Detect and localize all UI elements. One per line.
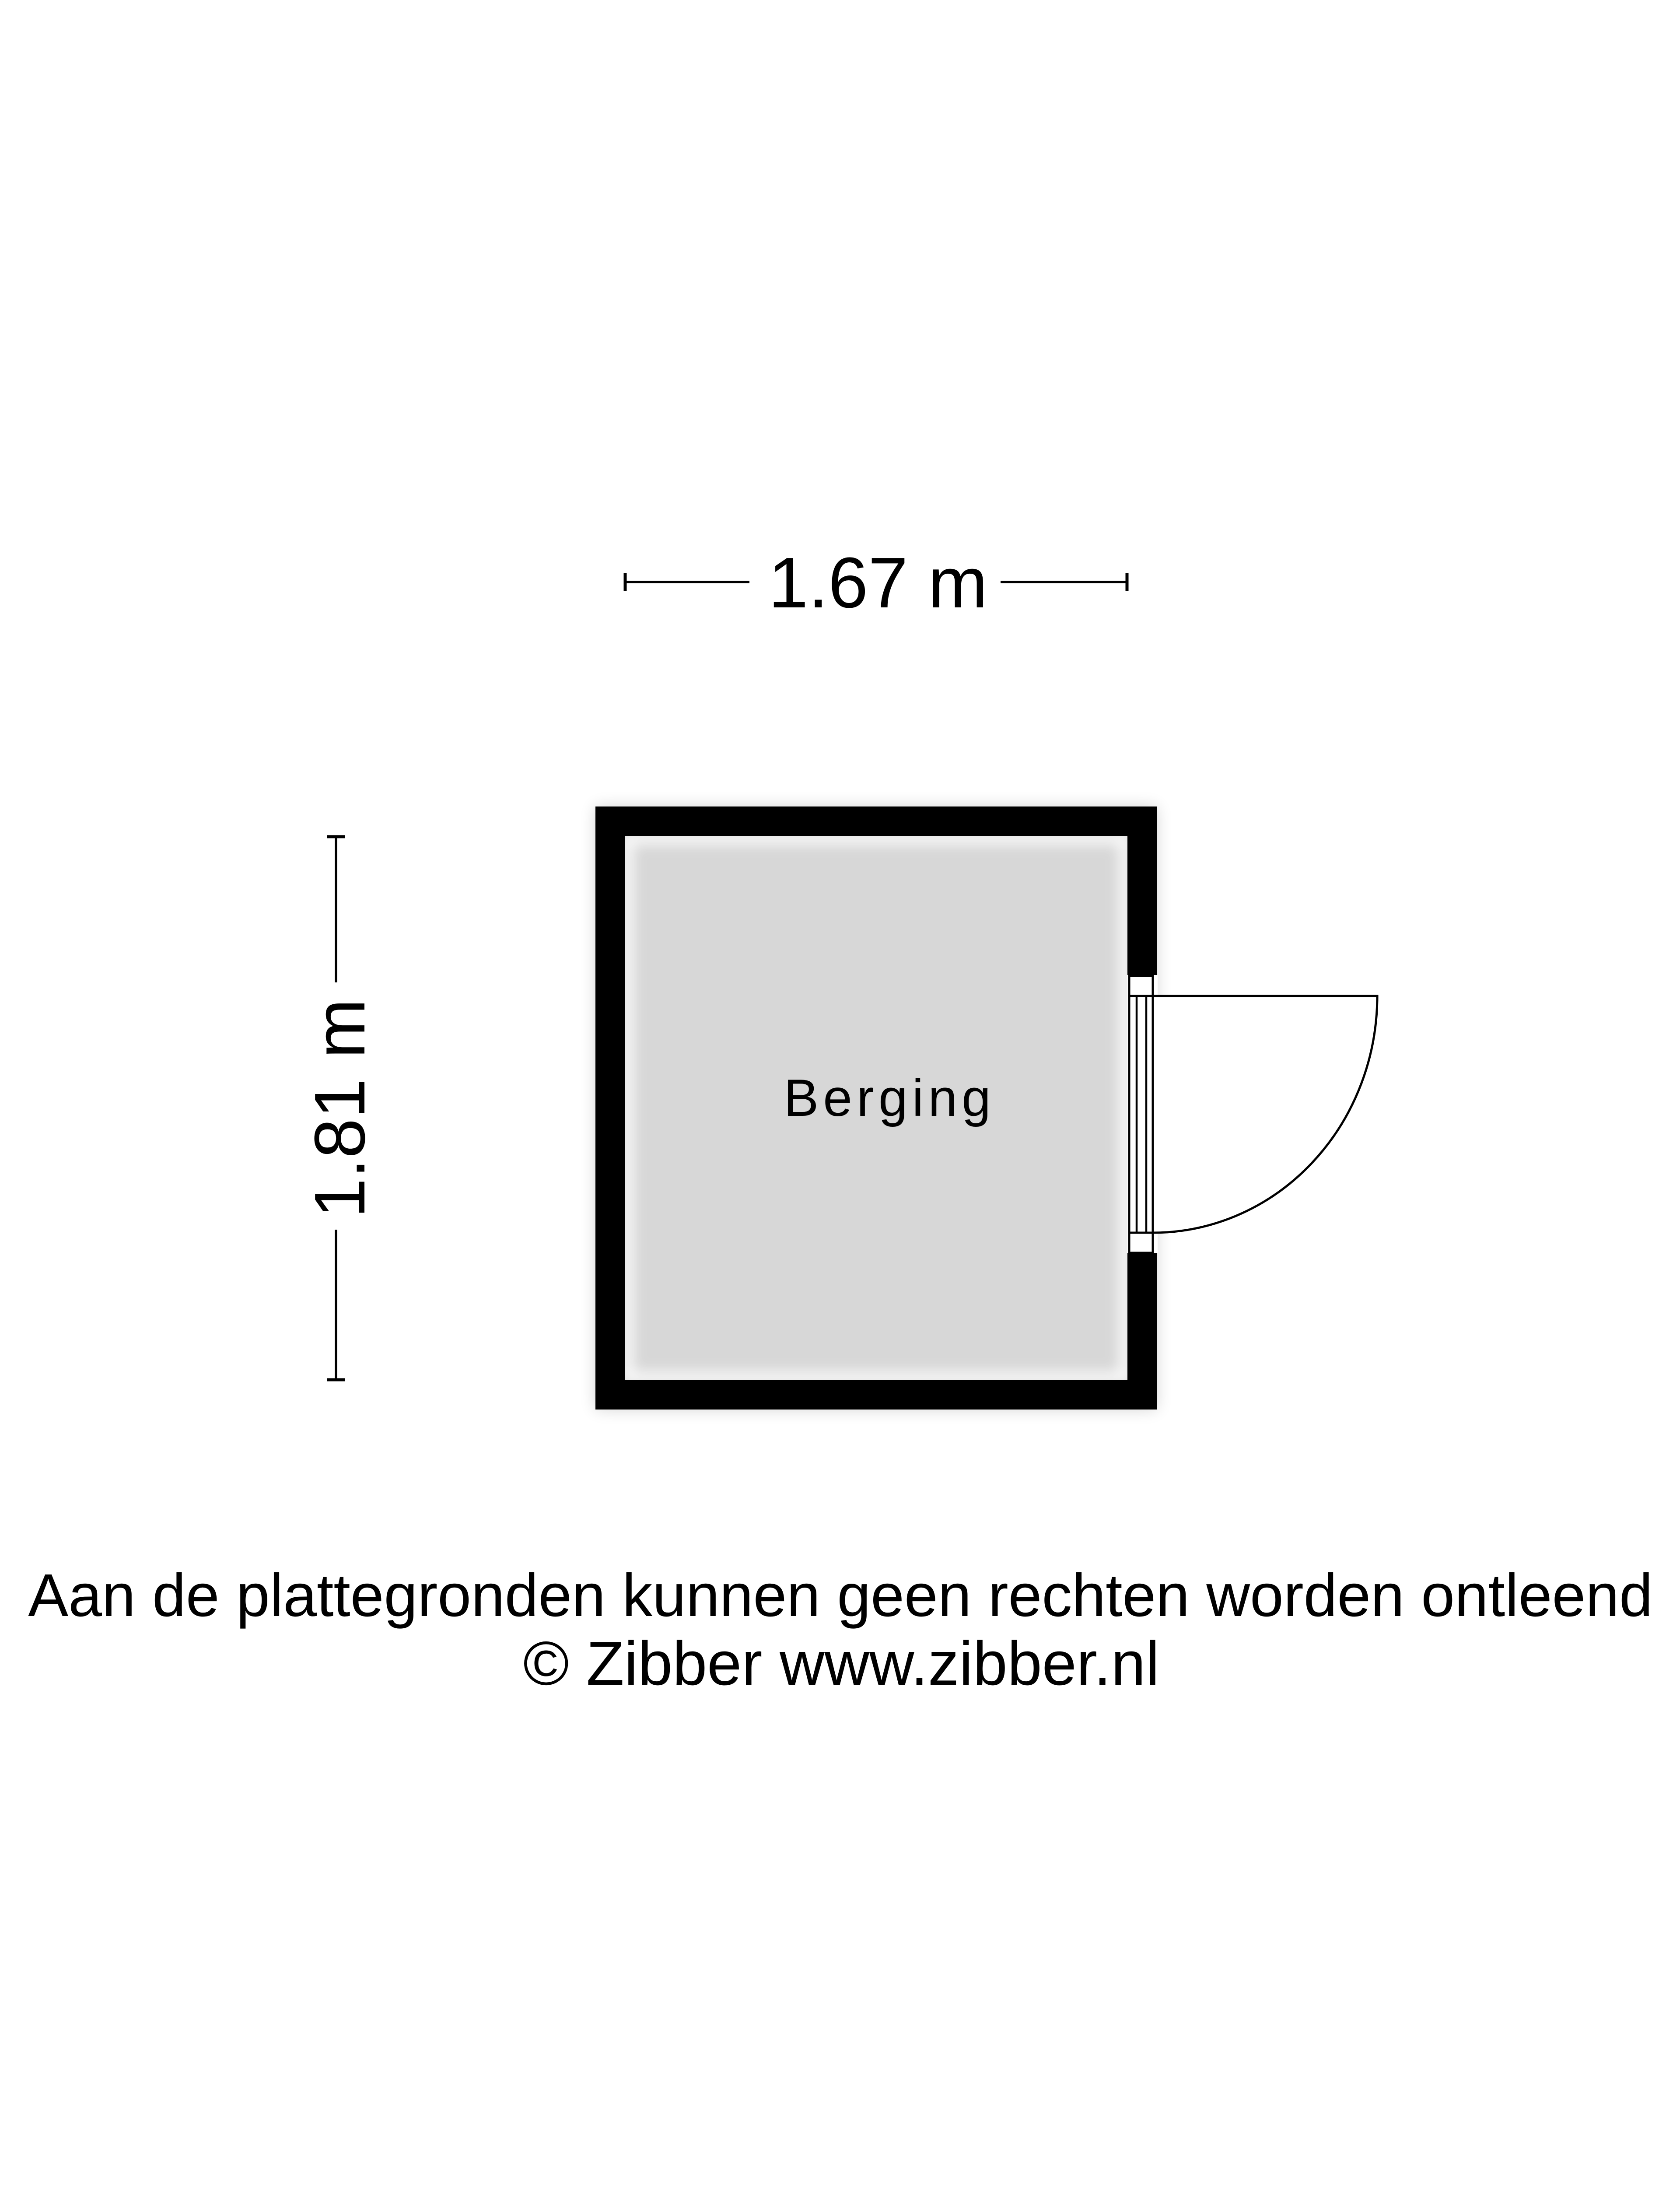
svg-text:© Zibber www.zibber.nl: © Zibber www.zibber.nl xyxy=(523,1629,1159,1698)
svg-text:1.81 m: 1.81 m xyxy=(300,999,380,1218)
svg-text:Aan de plattegronden kunnen ge: Aan de plattegronden kunnen geen rechten… xyxy=(28,1562,1653,1629)
svg-text:1.67 m: 1.67 m xyxy=(768,543,987,623)
svg-text:Berging: Berging xyxy=(784,1069,995,1127)
